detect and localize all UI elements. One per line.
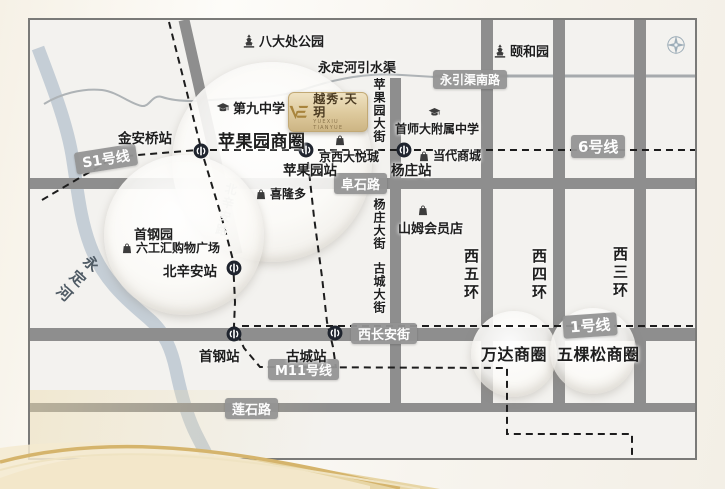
station-shougang: 首钢站 bbox=[199, 345, 240, 365]
line-6-badge: 6号线 bbox=[571, 135, 625, 158]
map-canvas: S1号线 永引渠南路 6号线 阜石路 西长安街 1号线 M11号线 莲石路 金安… bbox=[28, 18, 697, 460]
mall-icon bbox=[418, 150, 430, 162]
school-icon bbox=[216, 101, 230, 115]
district-wanda: 万达商圈 bbox=[481, 341, 547, 365]
poi-dangdai: 当代商城 bbox=[418, 147, 481, 164]
school-icon bbox=[428, 106, 441, 119]
line-1-badge: 1号线 bbox=[562, 312, 618, 339]
station-gucheng: 古城站 bbox=[286, 345, 327, 365]
road-changan-badge: 西长安街 bbox=[351, 323, 417, 344]
poi-badachu: 八大处公园 bbox=[242, 31, 324, 50]
metro-icon-yangzhuang bbox=[396, 142, 412, 158]
road-yangzhuang-street-label: 杨庄大街 bbox=[371, 198, 388, 250]
mall-icon bbox=[334, 134, 346, 146]
ve-monogram-icon bbox=[289, 103, 309, 122]
mall-icon bbox=[121, 242, 133, 254]
metro-icon-beixinan bbox=[226, 260, 242, 276]
map-poster: S1号线 永引渠南路 6号线 阜石路 西长安街 1号线 M11号线 莲石路 金安… bbox=[0, 0, 725, 489]
station-beixinan: 北辛安站 bbox=[163, 260, 217, 280]
poi-no9-school: 第九中学 bbox=[216, 98, 285, 117]
metro-icon-jinanqiao bbox=[193, 143, 209, 159]
metro-icon-gucheng bbox=[327, 325, 343, 341]
road-fushi-badge: 阜石路 bbox=[334, 173, 387, 194]
poi-xilongduo: 喜隆多 bbox=[255, 185, 306, 202]
temple-icon bbox=[493, 44, 507, 58]
temple-icon bbox=[242, 34, 256, 48]
poi-summer-palace: 颐和园 bbox=[493, 41, 549, 60]
project-logo: 越秀·天玥 YUEXIU TIANYUE bbox=[288, 92, 368, 132]
road-yongyin-badge: 永引渠南路 bbox=[433, 70, 507, 89]
river-label: 永定河 bbox=[49, 251, 105, 310]
highlight-bubble-shougang bbox=[104, 155, 264, 315]
canal-label: 永定河引水渠 bbox=[318, 57, 396, 76]
road-ring4-label: 西四环 bbox=[529, 248, 550, 302]
poi-liugonghui: 六工汇购物广场 bbox=[121, 239, 220, 256]
poi-cnu-school: 首师大附属中学 bbox=[395, 120, 479, 137]
station-jinanqiao: 金安桥站 bbox=[118, 127, 172, 147]
line-s1-badge: S1号线 bbox=[74, 143, 139, 174]
district-wukesong: 五棵松商圈 bbox=[557, 341, 640, 365]
mall-icon bbox=[255, 188, 267, 200]
poi-joycity: 京西大悦城 bbox=[319, 148, 379, 165]
mall-icon bbox=[417, 204, 429, 216]
road-gucheng-street-label: 古城大街 bbox=[371, 262, 388, 314]
road-ring5-label: 西五环 bbox=[461, 248, 482, 302]
poi-sams: 山姆会员店 bbox=[398, 218, 463, 237]
project-name-cn: 越秀·天玥 bbox=[313, 93, 367, 119]
road-ring3-label: 西三环 bbox=[610, 246, 631, 300]
compass-icon bbox=[665, 34, 687, 56]
metro-icon-shougang bbox=[226, 326, 242, 342]
road-lianshi-badge: 莲石路 bbox=[225, 398, 278, 419]
road-pingguoyuan-street-label: 苹果园大街 bbox=[371, 78, 388, 143]
project-name-en: YUEXIU TIANYUE bbox=[313, 119, 367, 131]
